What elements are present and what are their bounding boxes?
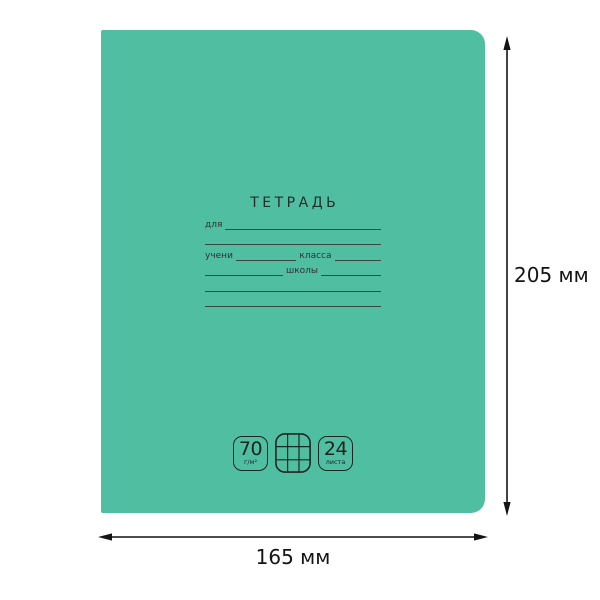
class-label: класса [296, 251, 334, 261]
owner-form: для учени класса школы [205, 214, 381, 307]
notebook-cover: ТЕТРАДЬ для учени класса школы [101, 30, 485, 513]
student-label: учени [205, 251, 236, 261]
for-label: для [205, 220, 225, 230]
ruled-line [205, 274, 283, 276]
ruled-line [205, 243, 381, 245]
width-dimension-label: 165 мм [256, 545, 331, 569]
form-row-for: для [205, 214, 381, 230]
height-dimension-label: 205 мм [514, 263, 589, 287]
form-row-blank-2 [205, 276, 381, 292]
sheet-count-badge: 24 листа [318, 436, 353, 471]
paper-density-badge: 70 г/м² [233, 436, 268, 471]
width-dimension-arrow [98, 533, 488, 540]
squared-paper-icon [275, 433, 311, 473]
notebook-title: ТЕТРАДЬ [101, 195, 485, 211]
density-unit: г/м² [244, 459, 257, 466]
sheets-value: 24 [324, 440, 347, 458]
ruled-line [321, 274, 381, 276]
ruled-line [205, 290, 381, 292]
form-row-student-class: учени класса [205, 245, 381, 261]
form-row-blank-1 [205, 230, 381, 246]
ruled-line [205, 305, 381, 307]
ruled-line [236, 259, 296, 261]
height-dimension-arrow [503, 36, 510, 516]
ruled-line [225, 228, 381, 230]
ruled-line [335, 259, 382, 261]
density-value: 70 [239, 440, 262, 458]
school-label: школы [283, 266, 321, 276]
form-row-school: школы [205, 261, 381, 277]
form-row-blank-3 [205, 292, 381, 308]
sheets-unit: листа [326, 459, 346, 466]
spec-badges: 70 г/м² 24 листа [233, 433, 353, 473]
